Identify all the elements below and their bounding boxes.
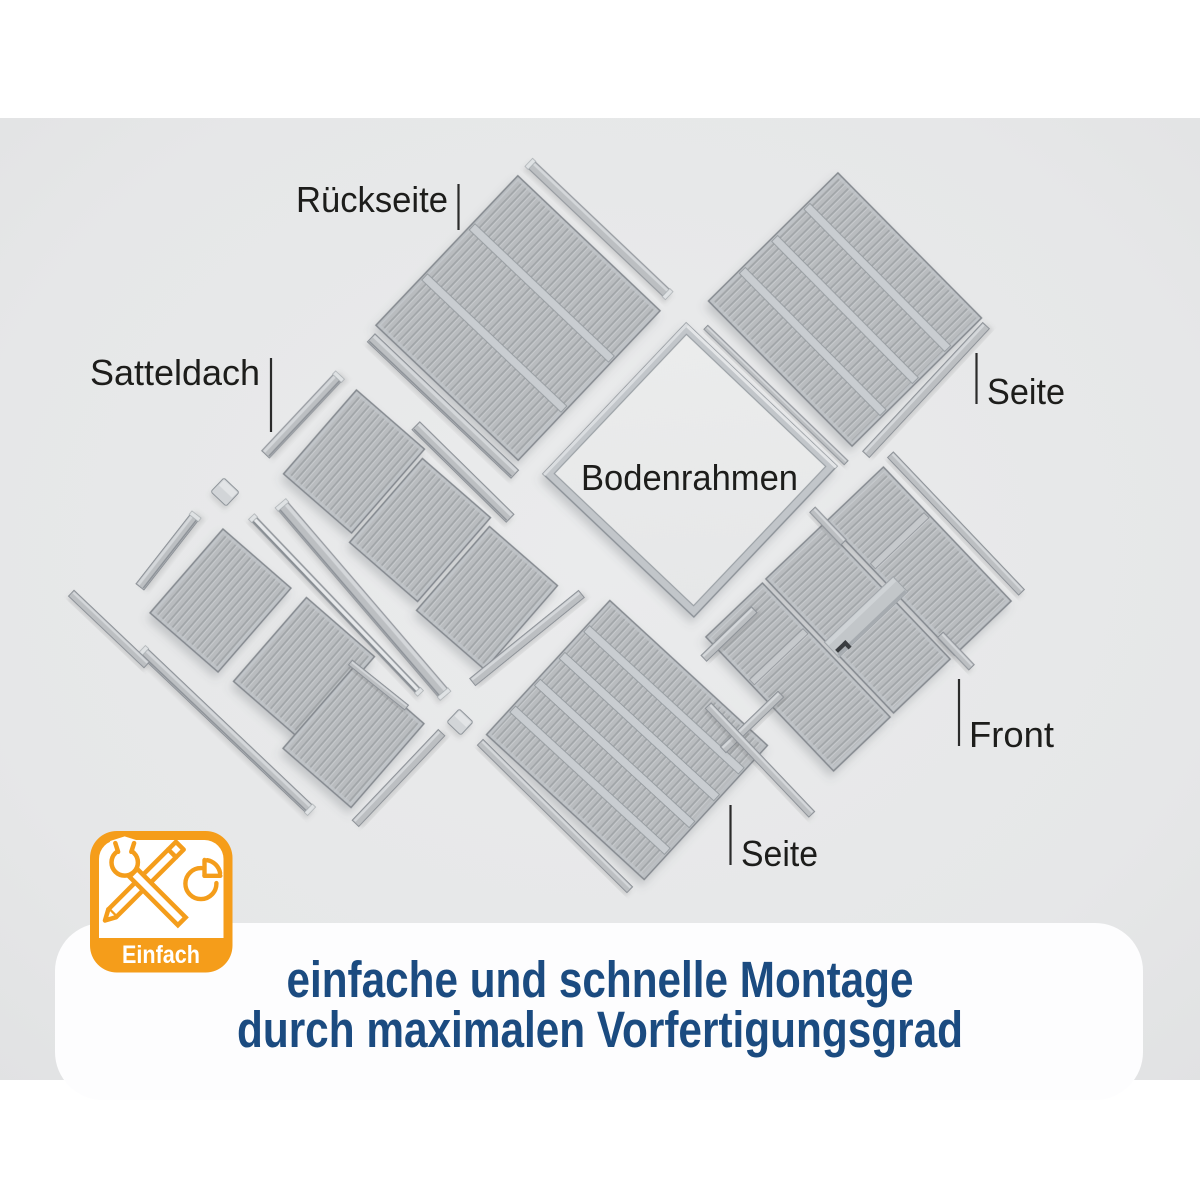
svg-text:Seite: Seite [741,833,818,874]
svg-text:Einfach: Einfach [122,941,200,969]
svg-text:Rückseite: Rückseite [296,179,448,220]
svg-text:Bodenrahmen: Bodenrahmen [581,457,798,498]
svg-text:Front: Front [969,714,1054,755]
svg-text:durch maximalen Vorfertigungsg: durch maximalen Vorfertigungsgrad [237,1001,963,1058]
svg-text:einfache und schnelle Montage: einfache und schnelle Montage [287,951,914,1008]
svg-text:Satteldach: Satteldach [90,352,260,393]
svg-text:Seite: Seite [987,371,1065,412]
